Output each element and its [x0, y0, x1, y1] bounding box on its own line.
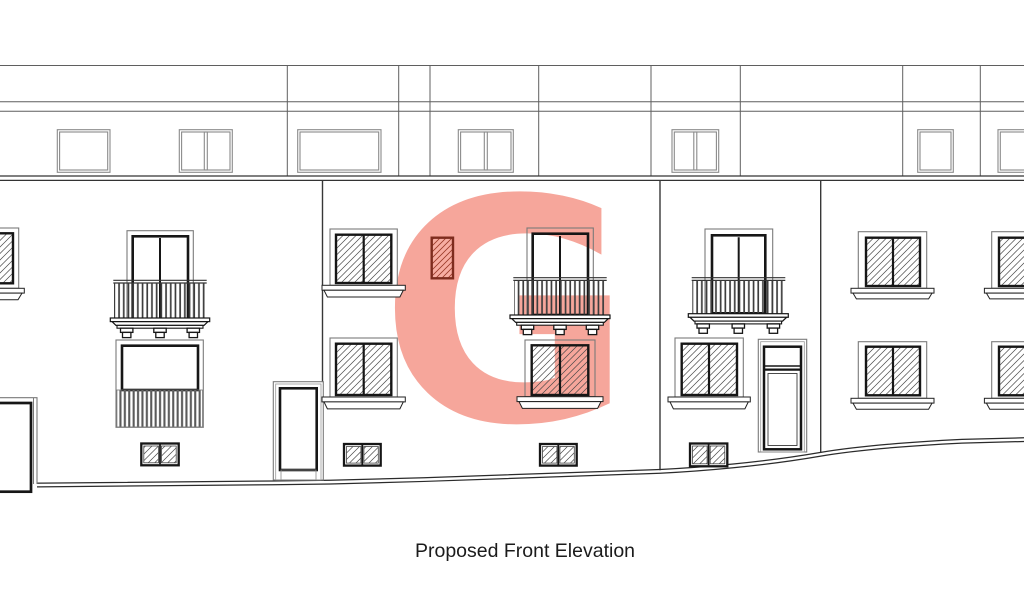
opening-with-balustrade [116, 340, 203, 427]
attic-window [918, 130, 954, 173]
elevation-sheet: G [0, 0, 1024, 615]
balcony-right [688, 229, 788, 333]
entrance-door [273, 382, 323, 480]
attic-window [998, 130, 1024, 173]
attic-window [298, 130, 381, 173]
vent-window [344, 444, 381, 466]
attic-window [179, 130, 232, 173]
window-lower-partial [984, 342, 1024, 410]
garage-door-partial [0, 398, 37, 492]
balcony-corbels [121, 328, 200, 337]
window-lower [851, 342, 934, 410]
vent-window [141, 444, 178, 466]
proposed-highlight-window [432, 238, 453, 279]
balcony-corbels [697, 324, 780, 333]
drawing-title: Proposed Front Elevation [415, 540, 635, 562]
right-building [668, 229, 807, 466]
window-upper [851, 232, 934, 299]
window-upper-partial [984, 232, 1024, 299]
window-partial-left [0, 228, 24, 300]
attic-window [57, 130, 110, 173]
vent-window [540, 444, 577, 466]
left-building [0, 228, 323, 492]
balcony-left [110, 231, 209, 338]
window-lower [668, 338, 750, 409]
entrance-door-with-fanlight [758, 339, 806, 452]
elevation-drawing: G [0, 0, 1024, 615]
vent-window [690, 444, 727, 467]
attic-window [672, 130, 719, 173]
far-right-building [851, 232, 1024, 410]
